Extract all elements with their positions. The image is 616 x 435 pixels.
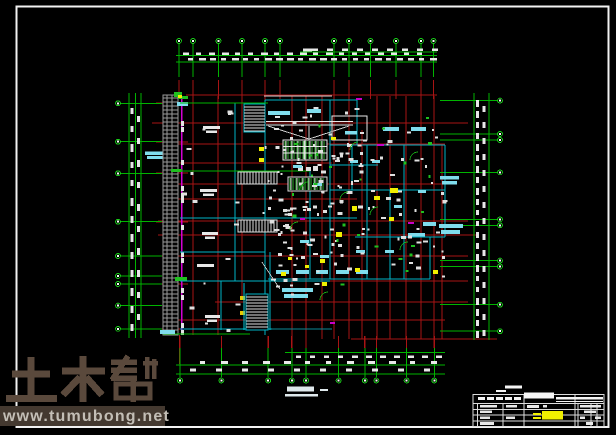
svg-text:www.tumubong.net: www.tumubong.net	[2, 408, 170, 425]
